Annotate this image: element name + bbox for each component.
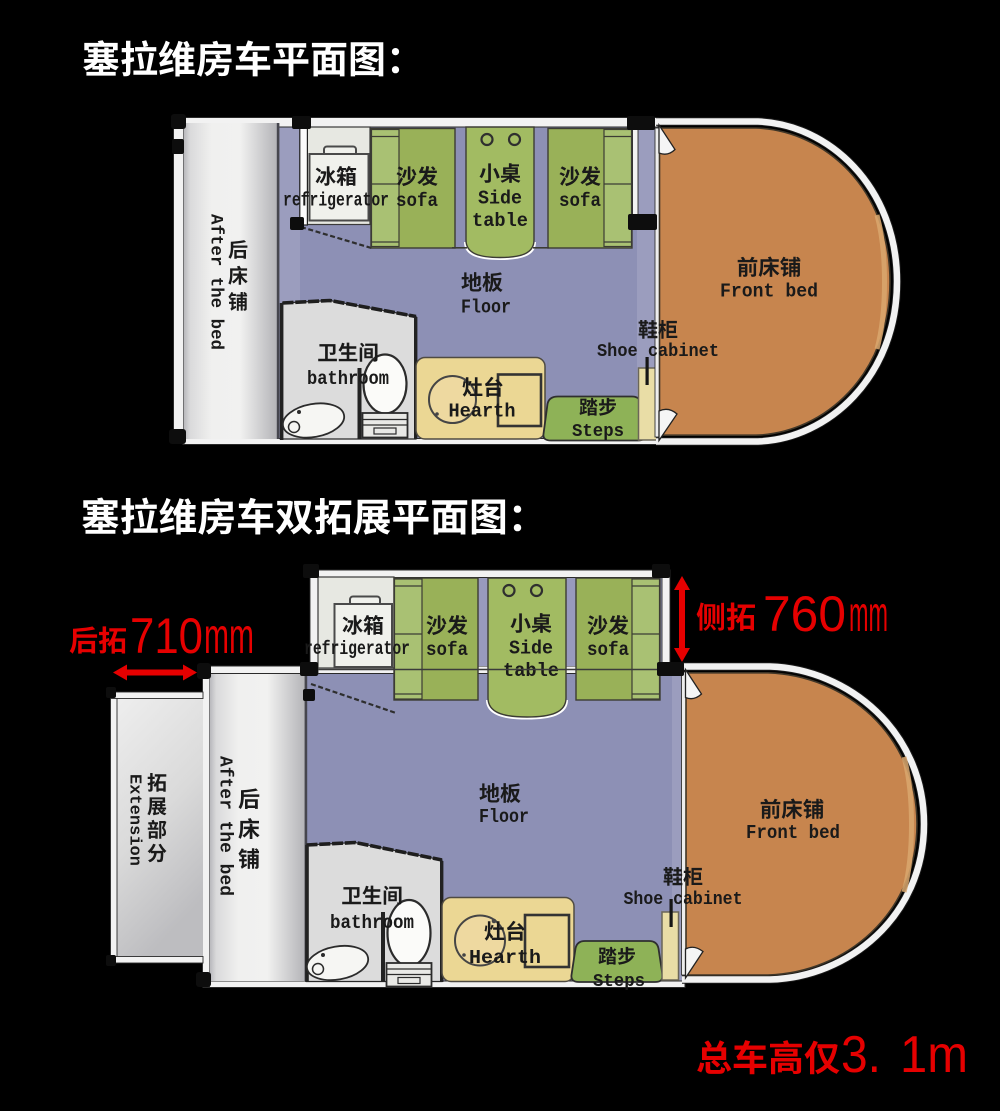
svg-text:Hearth: Hearth (449, 401, 516, 423)
svg-text:Hearth: Hearth (469, 947, 541, 969)
svg-text:Extension: Extension (125, 774, 144, 866)
svg-text:sofa: sofa (426, 639, 468, 661)
svg-text:mm: mm (849, 586, 888, 642)
svg-text:After the bed: After the bed (205, 214, 225, 350)
svg-text:sofa: sofa (587, 639, 629, 661)
svg-text:refrigerator: refrigerator (304, 638, 410, 660)
svg-text:table: table (472, 210, 528, 232)
svg-text:bathroom: bathroom (330, 912, 414, 934)
svg-text:Floor: Floor (479, 806, 529, 828)
svg-text:760: 760 (763, 586, 846, 642)
svg-text:Shoe cabinet: Shoe cabinet (624, 890, 743, 910)
svg-text:refrigerator: refrigerator (283, 190, 389, 212)
svg-text:mm: mm (204, 608, 254, 664)
svg-text:table: table (503, 660, 559, 682)
svg-text:Floor: Floor (461, 297, 511, 319)
svg-text:710: 710 (130, 608, 203, 664)
svg-text:sofa: sofa (559, 190, 601, 212)
svg-text:bathroom: bathroom (307, 368, 389, 390)
svg-text:sofa: sofa (396, 190, 438, 212)
svg-text:Side: Side (509, 638, 553, 660)
svg-text:1m: 1m (900, 1026, 968, 1084)
svg-text:Side: Side (478, 188, 522, 210)
svg-text:After the bed: After the bed (214, 756, 234, 896)
svg-text:Steps: Steps (593, 972, 645, 992)
svg-text:Front bed: Front bed (720, 281, 818, 303)
svg-text:3.: 3. (841, 1026, 881, 1084)
svg-text:Shoe cabinet: Shoe cabinet (597, 342, 719, 362)
svg-text:Steps: Steps (572, 422, 624, 442)
svg-text:Front bed: Front bed (746, 822, 840, 844)
